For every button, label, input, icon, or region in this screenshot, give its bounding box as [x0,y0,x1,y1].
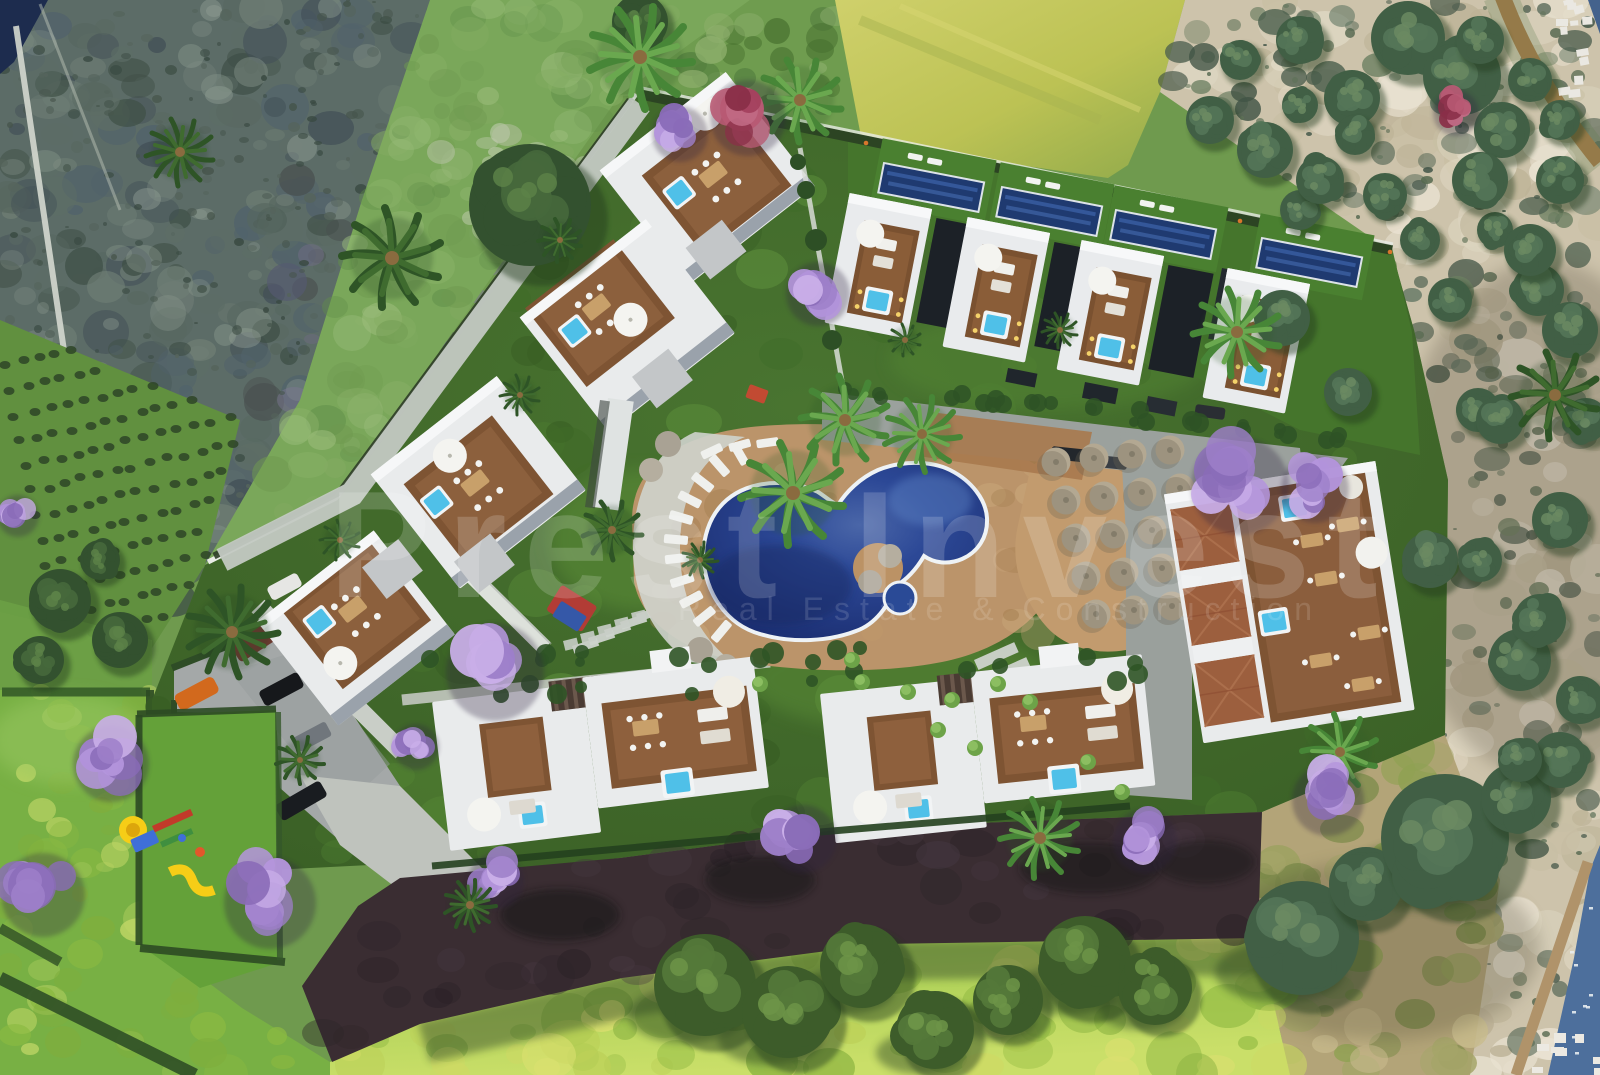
svg-text:Real Estate & Construction: Real Estate & Construction [678,591,1322,627]
